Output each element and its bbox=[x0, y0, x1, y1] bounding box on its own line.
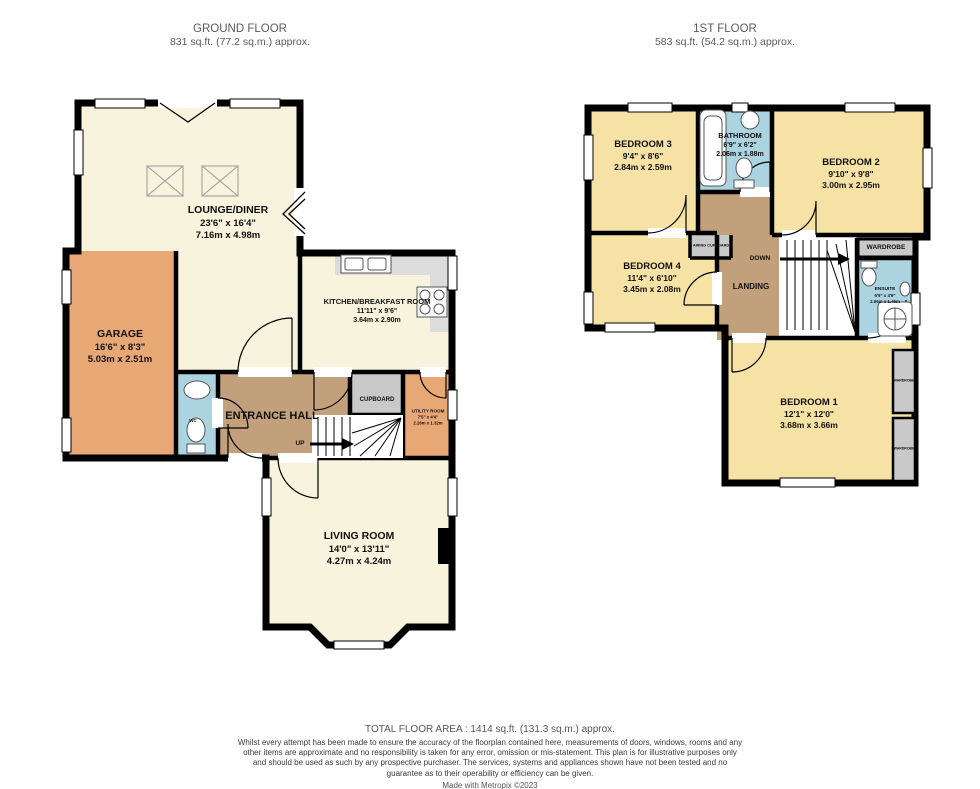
room-dim-imperial: 14'0" x 13'11" bbox=[324, 543, 395, 555]
room-dim-metric: 3.45m x 2.08m bbox=[623, 284, 681, 295]
bay-window-floor bbox=[310, 627, 408, 645]
label-bedroom2: BEDROOM 2 9'10" x 9'8" 3.00m x 2.95m bbox=[822, 157, 880, 191]
room-name: BEDROOM 2 bbox=[822, 157, 880, 169]
room-dim-imperial: 23'6" x 16'4" bbox=[188, 217, 269, 229]
label-bedroom1: BEDROOM 1 12'1" x 12'0" 3.68m x 3.66m bbox=[780, 397, 838, 431]
room-dim-metric: 2.26m x 1.32m bbox=[412, 420, 445, 426]
floorplan: GROUND FLOOR 831 sq.ft. (77.2 sq.m.) app… bbox=[0, 0, 980, 789]
first-floor-title: 1ST FLOOR bbox=[693, 23, 757, 35]
first-floor-area: 583 sq.ft. (54.2 sq.m.) approx. bbox=[655, 36, 795, 48]
room-dim-imperial: 6'9" x 6'2" bbox=[716, 141, 763, 150]
room-name: BEDROOM 1 bbox=[780, 397, 838, 409]
down-arrow-icon bbox=[780, 253, 850, 265]
room-dim-metric: 4.27m x 4.24m bbox=[324, 556, 395, 568]
room-name: KITCHEN/BREAKFAST ROOM bbox=[324, 297, 431, 307]
room-name: BEDROOM 4 bbox=[623, 261, 681, 273]
room-wc-area bbox=[178, 374, 218, 458]
label-wardrobe-right-1: WARDROBE bbox=[894, 379, 915, 384]
label-down: DOWN bbox=[750, 255, 771, 263]
room-dim-metric: 3.68m x 3.66m bbox=[780, 420, 838, 431]
room-dim-metric: 2.06m x 1.45m bbox=[870, 299, 900, 305]
label-airing-cupboard: AIRING CUPBOARD bbox=[693, 244, 729, 249]
room-name: LIVING ROOM bbox=[324, 530, 395, 544]
ground-floor-title: GROUND FLOOR bbox=[193, 23, 287, 35]
label-bedroom3: BEDROOM 3 9'4" x 8'6" 2.84m x 2.59m bbox=[614, 139, 672, 173]
first-floor-stairs bbox=[780, 240, 855, 332]
label-garage: GARAGE 16'6" x 8'3" 5.03m x 2.51m bbox=[88, 328, 152, 366]
room-dim-imperial: 16'6" x 8'3" bbox=[88, 341, 152, 353]
room-dim-imperial: 9'4" x 8'6" bbox=[614, 151, 672, 162]
room-dim-metric: 2.06m x 1.88m bbox=[716, 150, 763, 159]
label-up: UP bbox=[295, 440, 304, 448]
label-wardrobe-right-2: WARDROBE bbox=[894, 447, 915, 452]
label-entrance-hall: ENTRANCE HALL bbox=[225, 409, 319, 423]
total-floor-area: TOTAL FLOOR AREA : 1414 sq.ft. (131.3 sq… bbox=[210, 724, 770, 735]
label-kitchen: KITCHEN/BREAKFAST ROOM 11'11" x 9'6" 3.6… bbox=[324, 297, 431, 325]
room-dim-imperial: 9'10" x 9'8" bbox=[822, 169, 880, 180]
label-utility: UTILITY ROOM 7'5" x 4'4" 2.26m x 1.32m bbox=[412, 408, 445, 425]
room-name: GARAGE bbox=[88, 328, 152, 342]
label-ensuite: ENSUITE 6'9" x 4'9" 2.06m x 1.45m bbox=[870, 287, 900, 305]
label-bedroom4: BEDROOM 4 11'4" x 6'10" 3.45m x 2.08m bbox=[623, 261, 681, 295]
room-dim-imperial: 11'4" x 6'10" bbox=[623, 273, 681, 284]
label-bathroom: BATHROOM 6'9" x 6'2" 2.06m x 1.88m bbox=[716, 131, 763, 159]
room-name: BATHROOM bbox=[716, 131, 763, 141]
room-dim-metric: 3.00m x 2.95m bbox=[822, 180, 880, 191]
ground-floor-area: 831 sq.ft. (77.2 sq.m.) approx. bbox=[170, 36, 310, 48]
room-dim-metric: 3.64m x 2.90m bbox=[324, 316, 431, 325]
disclaimer-text: Whilst every attempt has been made to en… bbox=[238, 738, 743, 779]
footer: TOTAL FLOOR AREA : 1414 sq.ft. (131.3 sq… bbox=[210, 724, 770, 789]
landing-corridor-area bbox=[698, 192, 772, 235]
label-lounge: LOUNGE/DINER 23'6" x 16'4" 7.16m x 4.98m bbox=[188, 204, 269, 242]
room-dim-metric: 5.03m x 2.51m bbox=[88, 354, 152, 366]
room-name: BEDROOM 3 bbox=[614, 139, 672, 151]
room-dim-imperial: 11'11" x 9'6" bbox=[324, 307, 431, 316]
label-cupboard: CUPBOARD bbox=[360, 397, 395, 405]
label-landing: LANDING bbox=[733, 282, 769, 292]
room-dim-imperial: 12'1" x 12'0" bbox=[780, 409, 838, 420]
room-dim-metric: 2.84m x 2.59m bbox=[614, 162, 672, 173]
label-wc: WC bbox=[189, 418, 197, 424]
label-wardrobe-top: WARDROBE bbox=[867, 244, 906, 252]
room-name: LOUNGE/DINER bbox=[188, 204, 269, 218]
credit-text: Made with Metropix ©2023 bbox=[210, 781, 770, 789]
label-living-room: LIVING ROOM 14'0" x 13'11" 4.27m x 4.24m bbox=[324, 530, 395, 568]
room-dim-metric: 7.16m x 4.98m bbox=[188, 230, 269, 242]
